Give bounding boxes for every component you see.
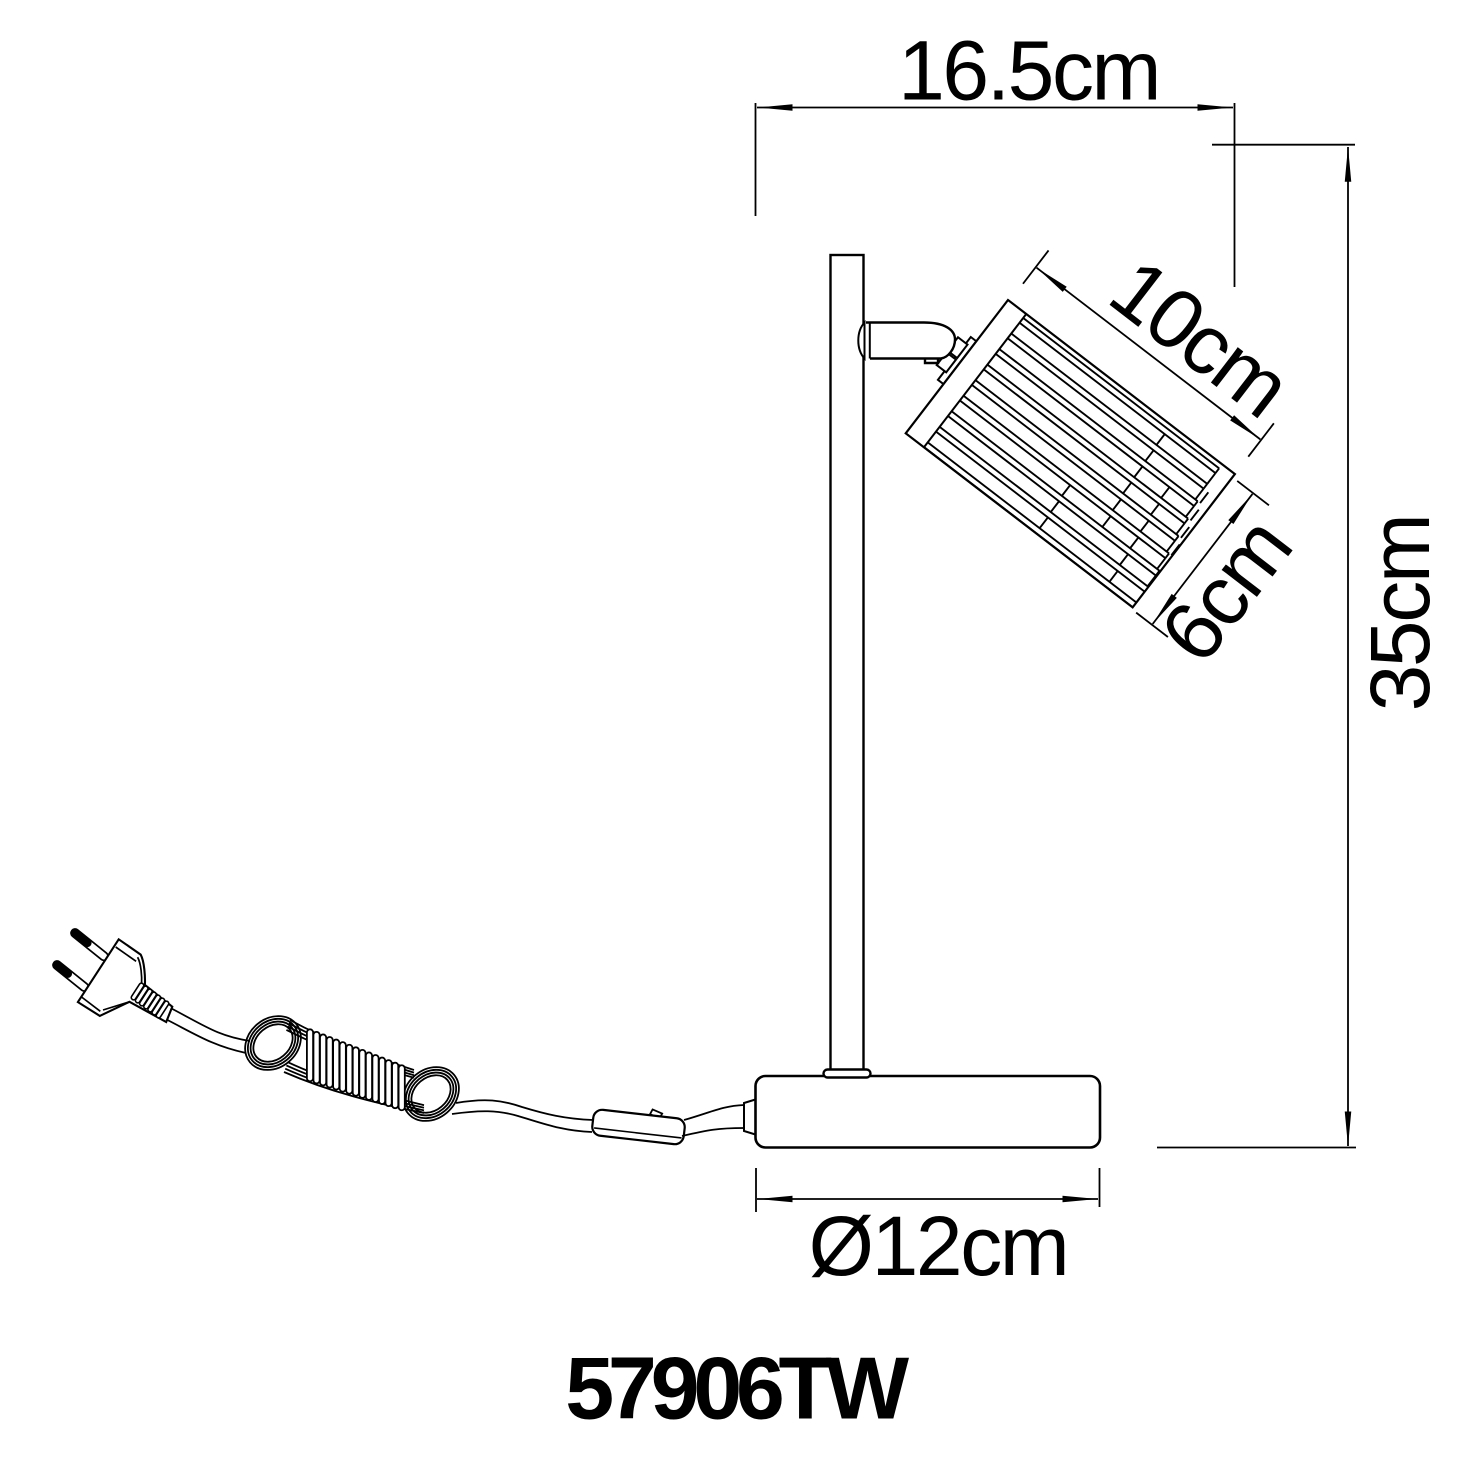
svg-text:57906TW: 57906TW <box>565 1339 909 1438</box>
svg-text:35cm: 35cm <box>1353 516 1447 712</box>
svg-text:16.5cm: 16.5cm <box>898 23 1159 117</box>
svg-text:Ø12cm: Ø12cm <box>809 1199 1068 1293</box>
